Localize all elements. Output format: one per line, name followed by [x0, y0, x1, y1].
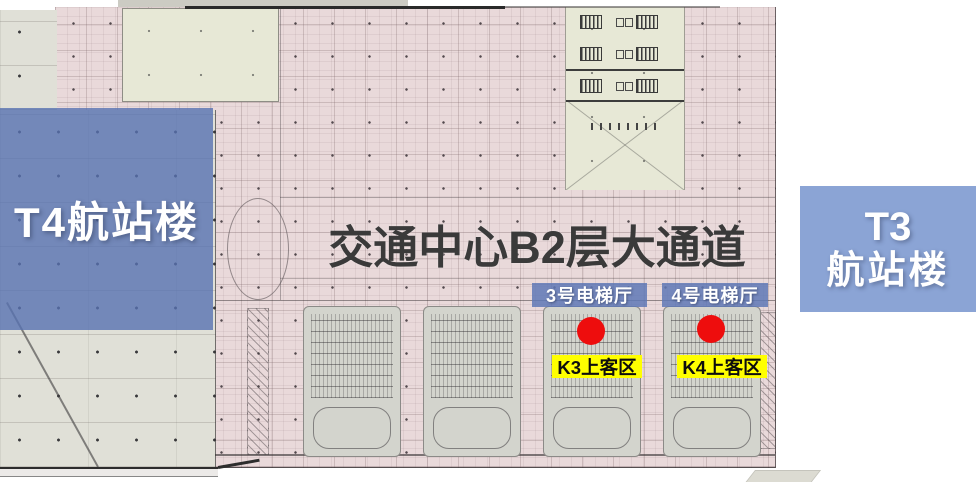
pickup-lane-loop [433, 407, 511, 449]
corridor-title: 交通中心B2层大通道 [298, 217, 776, 269]
parking-bay-module [423, 306, 521, 457]
t3-terminal-label-line1: T3 [865, 204, 912, 250]
escalator-icon [636, 79, 658, 93]
t4-terminal-label: T4航站楼 [14, 189, 199, 250]
parking-area-topleft [0, 10, 57, 110]
elevator-shaft-icon [616, 50, 624, 59]
parking-bay-module [303, 306, 401, 457]
green-hall-area [122, 8, 279, 102]
elevator-shaft-icon [625, 50, 633, 59]
ramp-hatch [247, 308, 269, 455]
corridor-line [280, 278, 775, 279]
parking-stall-rows [311, 314, 393, 398]
elevator-shaft-icon [616, 82, 624, 91]
plan-top-edge [185, 6, 505, 9]
t3-terminal-zone: T3 航站楼 [800, 186, 976, 312]
station-cross-lines [566, 100, 684, 190]
metro-station-area [565, 7, 685, 190]
elevator-hall-3-badge: 3号电梯厅 [532, 283, 647, 307]
elevator-shaft-icon [625, 82, 633, 91]
elevator-shaft-icon [616, 18, 624, 27]
parking-stall-rows [431, 314, 513, 398]
plan-top-edge [505, 6, 720, 8]
k3-pickup-zone-badge: K3上客区 [552, 355, 642, 378]
elevator-hall-4-badge: 4号电梯厅 [662, 283, 768, 307]
k4-location-marker-dot [697, 315, 725, 343]
escalator-icon [580, 15, 602, 29]
people-figure-marks [591, 123, 661, 130]
t4-terminal-zone: T4航站楼 [0, 108, 213, 330]
pickup-lane-loop [313, 407, 391, 449]
corridor-line [215, 110, 216, 467]
t3-terminal-label-line2: 航站楼 [826, 250, 949, 294]
floorplan-map: T4航站楼 交通中心B2层大通道 3号电梯厅 4号电梯厅 K3上客区 K4上客区… [0, 0, 976, 482]
corridor-line [280, 197, 775, 198]
station-divider-line [566, 69, 684, 71]
escalator-icon [636, 15, 658, 29]
elevator-shaft-icon [625, 18, 633, 27]
escalator-icon [580, 47, 602, 61]
k4-pickup-zone-badge: K4上客区 [677, 355, 767, 378]
pickup-lane-loop [673, 407, 751, 449]
escalator-icon [636, 47, 658, 61]
road-strip [0, 467, 218, 477]
pickup-lane-loop [553, 407, 631, 449]
escalator-icon [580, 79, 602, 93]
ramp-bottom-right [745, 470, 821, 482]
k3-location-marker-dot [577, 317, 605, 345]
bus-loop-oval [227, 198, 289, 300]
